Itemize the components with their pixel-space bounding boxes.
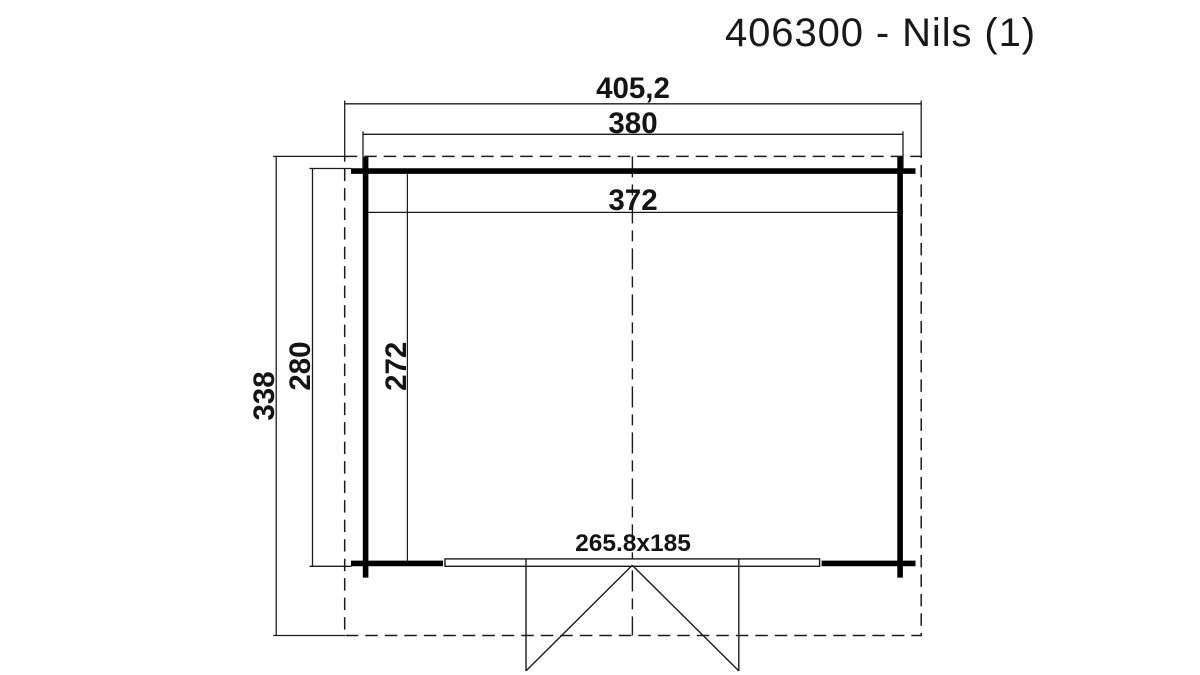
svg-text:405,2: 405,2 (596, 72, 670, 105)
svg-text:380: 380 (608, 107, 657, 140)
svg-text:272: 272 (380, 342, 413, 391)
svg-text:372: 372 (608, 184, 657, 217)
svg-text:406300 - Nils (1): 406300 - Nils (1) (725, 11, 1036, 55)
svg-text:280: 280 (284, 341, 317, 390)
svg-text:338: 338 (248, 371, 281, 420)
svg-text:265.8x185: 265.8x185 (575, 530, 691, 557)
